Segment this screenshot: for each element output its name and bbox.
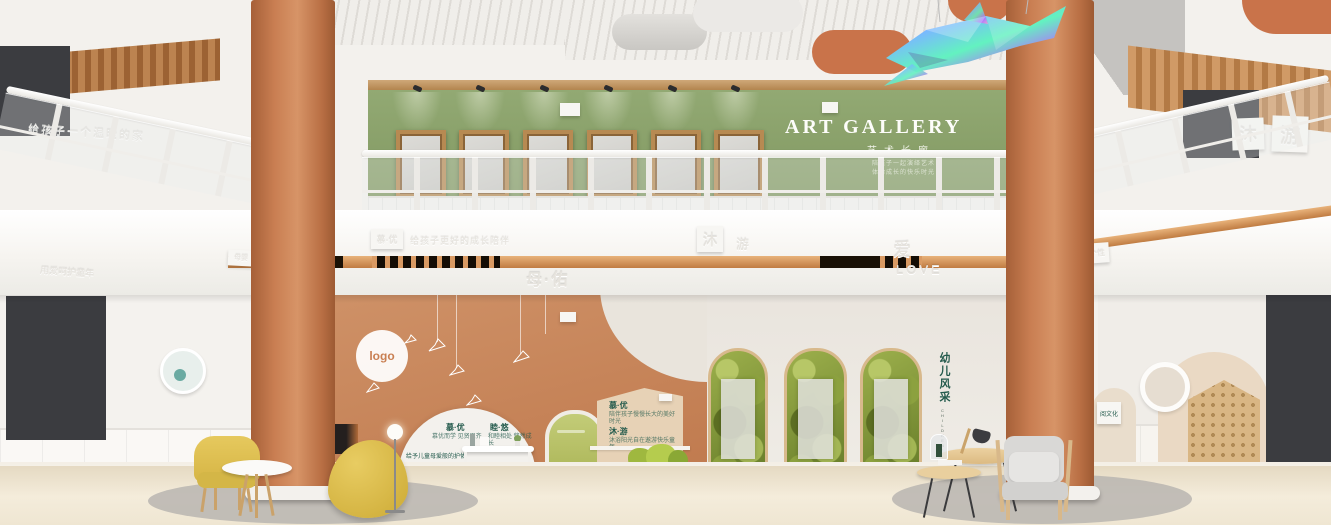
left-window-2 (56, 296, 106, 440)
band-plaque-muyou-label: 慕·优 (377, 233, 398, 246)
floor-slab-fascia: 慕·优 给孩子更好的成长陪伴 母婴 用爱呵护童年 沐 游 母·佑 爱 LOVE … (0, 210, 1331, 295)
house-heading-1: 慕·优 (609, 400, 628, 411)
spotlight-glow (647, 92, 697, 134)
gray-armchair[interactable] (996, 434, 1074, 520)
cloud-cutout-orange-corner (1242, 0, 1331, 34)
right-wall-sign-label: 阅文化 (1100, 409, 1118, 418)
logo-circle: logo (356, 330, 408, 382)
paper-plane-icon (513, 350, 530, 363)
arch-heading-1: 慕·优 (446, 422, 465, 433)
spotlight-glow (710, 92, 760, 134)
logo-label: logo (369, 349, 394, 363)
cloud-cutout-white (693, 0, 803, 32)
porthole-window (1140, 362, 1190, 412)
band-love-text: LOVE (896, 262, 943, 277)
left-window-1 (6, 296, 58, 440)
far-right-window (1266, 288, 1331, 464)
band-muyou-text: 母·佑 (526, 266, 569, 290)
badge-teal-dot (174, 369, 186, 381)
floor-lamp-left (380, 424, 410, 512)
desk-lamp-arm (960, 428, 971, 454)
band-emboss-far-left: 用爱呵护童年 (40, 263, 181, 286)
paper-plane-icon (449, 364, 465, 376)
round-wall-badge (160, 348, 206, 394)
arch-heading-2: 睦·悠 (490, 422, 509, 433)
gallery-wall-plaque (560, 103, 580, 116)
band-plaque-small-left-label: 母婴 (234, 253, 249, 264)
glass-cloche (930, 434, 948, 460)
paper-plane-icon (366, 382, 380, 393)
round-side-table-left[interactable] (222, 460, 292, 518)
ceiling-striped-panel-left (330, 0, 565, 45)
book-stack (938, 460, 962, 465)
iridescent-whale-sculpture (868, 0, 1073, 88)
paper-plane-icon (428, 338, 446, 352)
desk-lamp-shade (971, 428, 992, 445)
paper-plane-icon (466, 394, 482, 406)
copper-strip-slatted (372, 256, 500, 268)
kindergarten-lobby-scene: ART GALLERY 艺术长廊 陪孩子一起演绎艺术 体验成长的快乐时光 给孩子… (0, 0, 1331, 525)
kids-style-title: 幼儿风采 (936, 352, 952, 404)
decor-vase (470, 434, 475, 446)
door-detail-line (557, 430, 585, 433)
band-char-you: 游 (736, 234, 749, 253)
right-wall-sign: 阅文化 (1097, 402, 1121, 424)
spotlight-glow (392, 92, 442, 134)
desk-lamp (952, 420, 996, 460)
band-ai-char: 爱 (893, 236, 911, 262)
arch-paragraph-1: 慕优而学 见贤思齐 (432, 434, 486, 441)
paper-plane-icon (404, 334, 417, 344)
console-top (462, 446, 534, 452)
band-plaque-muyou: 慕·优 (371, 229, 403, 249)
gallery-wall-plaque (822, 102, 838, 113)
copper-strip-gap (820, 256, 880, 268)
cloche-plant (936, 444, 942, 457)
decor-box (480, 437, 489, 446)
art-gallery-title: ART GALLERY (785, 116, 1015, 139)
house-heading-2: 沐·游 (609, 426, 628, 437)
spotlight-glow (583, 92, 633, 134)
frosted-panel (721, 379, 755, 459)
band-emboss-left: 给孩子更好的成长陪伴 (410, 234, 540, 247)
gallery-railing-center (362, 150, 1014, 216)
terracotta-column-left (251, 0, 335, 492)
spotlight-glow (455, 92, 505, 134)
lamp-globe (387, 424, 403, 440)
right-arch-niche (1092, 388, 1136, 470)
band-tile-mu: 沐 (697, 226, 723, 252)
frosted-panel (874, 379, 908, 459)
slab-shadow (0, 295, 1331, 303)
band-tile-mu-label: 沐 (702, 229, 717, 250)
house-paragraph-1: 陪伴孩子慢慢长大的美好时光 (609, 412, 675, 426)
lamp-base (385, 510, 405, 513)
lamp-pole (394, 439, 396, 511)
cloud-cutout-gray (612, 14, 707, 50)
frosted-panel (798, 379, 833, 459)
orange-wall-plaque (560, 312, 576, 322)
house-mini-plaque (659, 394, 672, 401)
